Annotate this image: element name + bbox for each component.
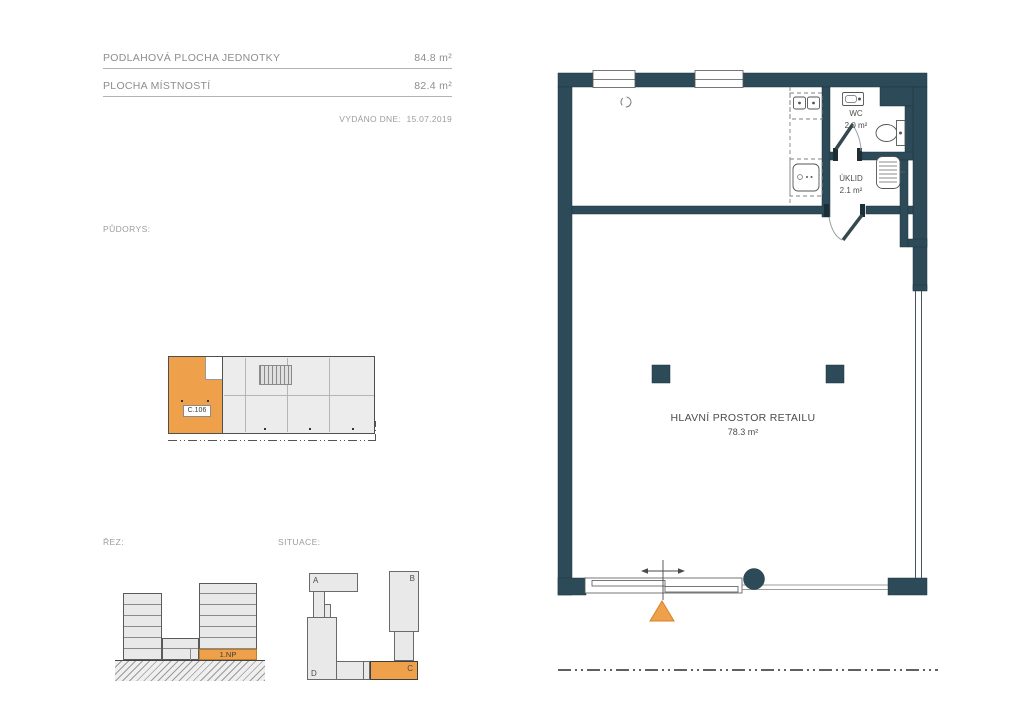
section-middle-divider [190,649,191,660]
sliding-door-panel [665,587,738,593]
situation-block-a: A [309,573,358,592]
issue-date: VYDÁNO DNE: 15.07.2019 [103,114,452,124]
section-left-tower [123,593,162,660]
structural-columns [652,365,844,383]
situation-diagram: A D C B [303,568,425,686]
column [652,365,670,383]
toilet-icon [876,125,897,142]
uklid-room-label: ÚKLID [839,174,863,183]
connector-divider [363,662,364,679]
unit-sheet-page: PODLAHOVÁ PLOCHA JEDNOTKY 84.8 m² PLOCHA… [0,0,1024,724]
floor-1np-label: 1.NP [220,650,237,659]
block-d-label: D [311,669,317,678]
unit-floor-area-value: 84.8 m² [414,52,452,64]
thumbnail-stairs [259,365,292,385]
rooms-area-row: PLOCHA MÍSTNOSTÍ 82.4 m² [103,80,452,97]
round-column [744,569,765,590]
kitchenette-zone [790,87,822,206]
thumbnail-unit-highlight: C.106 [169,357,223,433]
building-section-diagram: 1.NP [115,583,265,683]
thumbnail-boundary-line [168,440,376,441]
floorplan-section-label: PŮDORYS: [103,224,150,234]
sliding-door-panel [592,581,665,587]
thumbnail-column-dot [264,428,266,430]
section-ground-hatch [115,660,265,681]
section-middle-block [162,638,199,660]
main-floor-plan: WC 2.0 m² ÚKLID 2.1 m² HLAVNÍ PROSTOR RE… [540,60,960,690]
situation-block-a-wing-step [324,604,331,618]
rooms-area-label: PLOCHA MÍSTNOSTÍ [103,80,210,92]
column [826,365,844,383]
outer-walls [558,73,927,595]
section-cut-label: ŘEZ: [103,537,124,547]
situation-connector-dc [336,661,370,680]
block-a-label: A [313,576,318,585]
situation-block-d: D [307,617,337,680]
thumbnail-column-dot [181,400,183,402]
unit-floor-area-label: PODLAHOVÁ PLOCHA JEDNOTKY [103,52,280,64]
situation-block-c-highlighted: C [370,661,418,680]
wc-room-area: 2.0 m² [845,121,868,130]
situation-section-label: SITUACE: [278,537,320,547]
thumbnail-column-dot [309,428,311,430]
thumbnail-column-dot [207,400,209,402]
uklid-room-area: 2.1 m² [840,186,863,195]
floorplan-thumbnail: C.106 [168,356,375,434]
retail-room-area: 78.3 m² [728,427,759,437]
thumbnail-boundary-line-vertical [375,421,376,441]
block-b-label: B [410,574,415,583]
issue-date-label: VYDÁNO DNE: [339,114,401,124]
room-labels: WC 2.0 m² ÚKLID 2.1 m² HLAVNÍ PROSTOR RE… [671,109,868,437]
right-window-band [916,291,922,578]
interior-walls [572,87,927,291]
sprinkler-symbol [621,97,631,107]
unit-code-label: C.106 [183,405,211,417]
entrance-assembly [585,560,888,621]
unit-floor-area-row: PODLAHOVÁ PLOCHA JEDNOTKY 84.8 m² [103,52,452,69]
wc-room-label: WC [849,109,863,118]
thumbnail-unit-bath-nook [205,357,222,380]
block-c-label: C [407,664,413,673]
entrance-marker-triangle [650,601,674,621]
thumbnail-column-dot [352,428,354,430]
situation-block-b: B [389,571,419,632]
issue-date-value: 15.07.2019 [406,114,452,124]
section-1np-highlight: 1.NP [199,649,257,660]
rooms-area-value: 82.4 m² [414,80,452,92]
situation-connector-bc [394,631,414,661]
appliance-icon [793,164,819,191]
thumbnail-corridor-line [224,395,374,396]
retail-room-label: HLAVNÍ PROSTOR RETAILU [671,411,816,424]
